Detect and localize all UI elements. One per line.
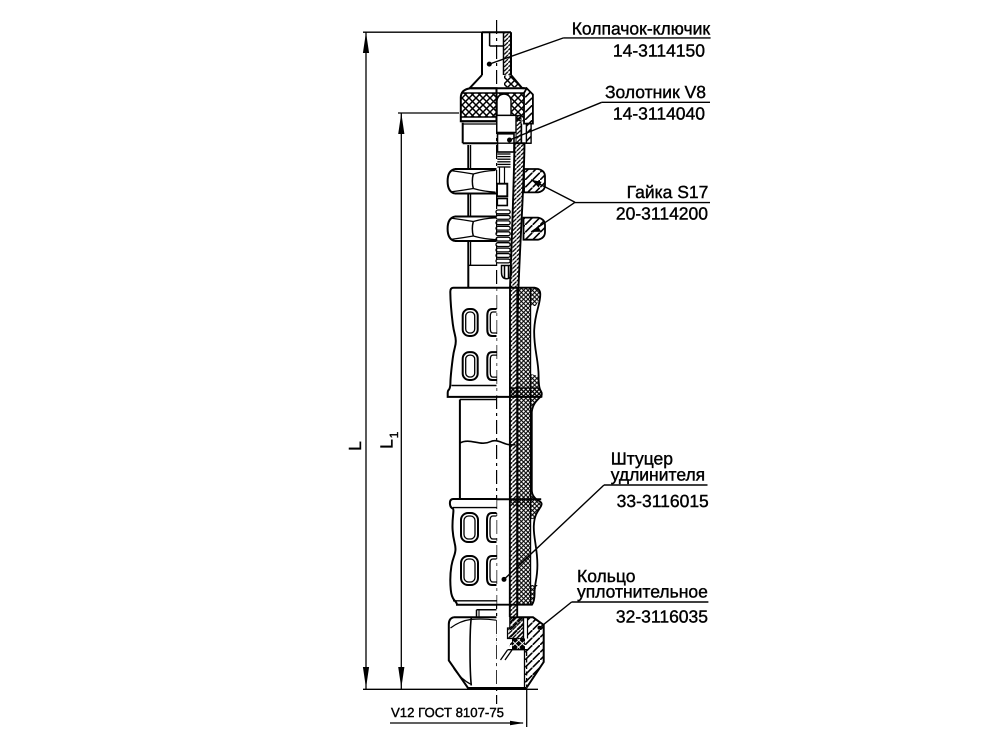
svg-text:L: L bbox=[376, 439, 396, 449]
svg-text:20-3114200: 20-3114200 bbox=[616, 204, 708, 224]
svg-text:L: L bbox=[345, 441, 365, 451]
svg-text:33-3116015: 33-3116015 bbox=[617, 491, 709, 511]
svg-text:уплотнительное: уплотнительное bbox=[577, 582, 708, 602]
svg-text:Золотник V8: Золотник V8 bbox=[605, 82, 706, 102]
svg-text:32-3116035: 32-3116035 bbox=[616, 607, 708, 627]
svg-text:удлинителя: удлинителя bbox=[611, 465, 705, 485]
svg-text:1: 1 bbox=[387, 431, 401, 438]
svg-text:Колпачок-ключик: Колпачок-ключик bbox=[572, 19, 711, 39]
svg-text:Гайка S17: Гайка S17 bbox=[627, 182, 709, 202]
svg-text:V12 ГОСТ 8107-75: V12 ГОСТ 8107-75 bbox=[391, 705, 504, 720]
svg-text:14-3114040: 14-3114040 bbox=[613, 104, 705, 124]
svg-text:14-3114150: 14-3114150 bbox=[613, 41, 705, 61]
